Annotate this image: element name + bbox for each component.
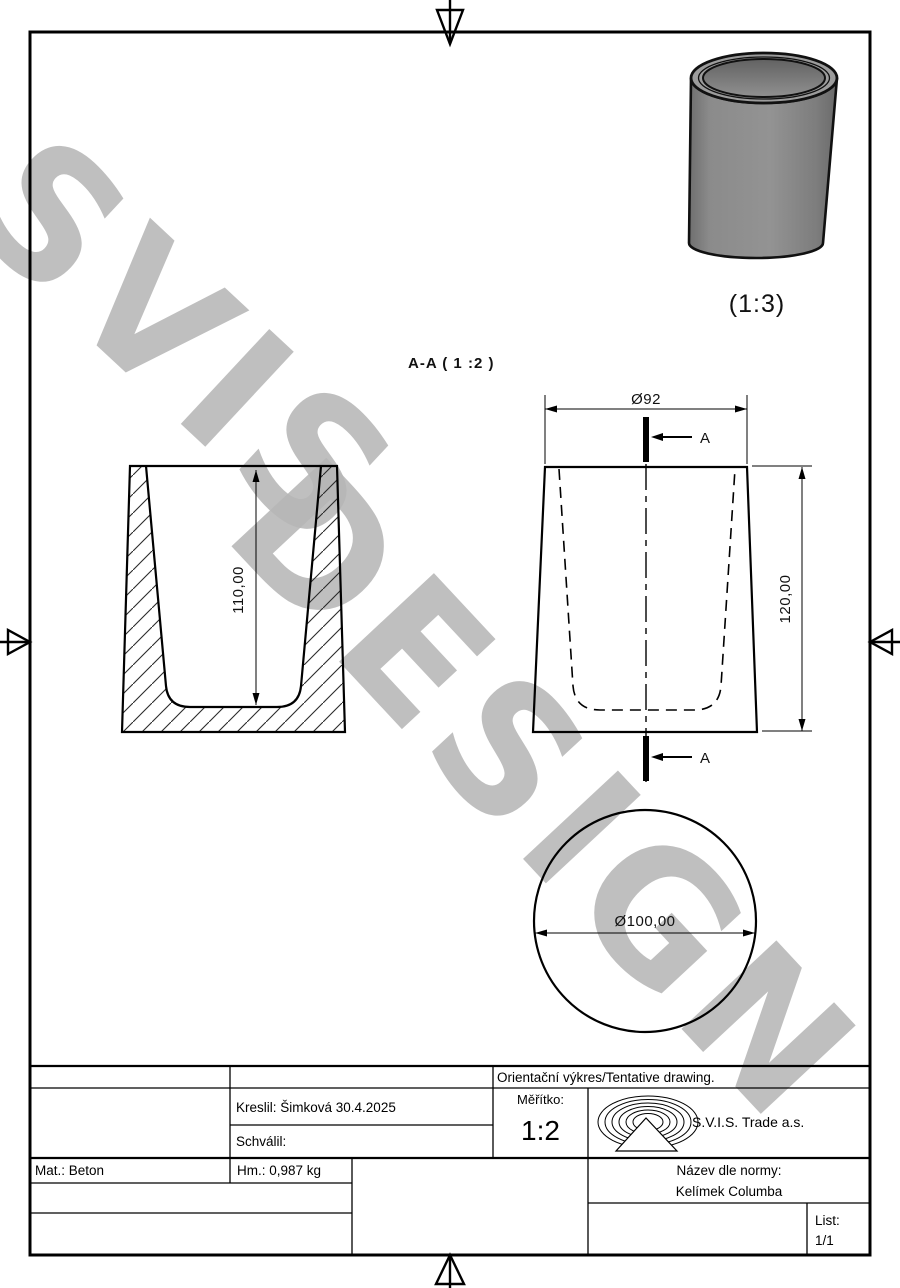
iso-scale-label: (1:3) bbox=[729, 290, 785, 318]
norm-name-label: Název dle normy: bbox=[588, 1160, 870, 1181]
dim-height: 120,00 bbox=[752, 466, 812, 731]
tentative-drawing-note: Orientační výkres/Tentative drawing. bbox=[497, 1066, 867, 1088]
section-arrow-top-label: A bbox=[700, 430, 711, 447]
material-field: Mat.: Beton bbox=[35, 1158, 225, 1183]
section-title: A-A ( 1 :2 ) bbox=[408, 355, 494, 372]
scale-label: Měřítko: bbox=[493, 1090, 588, 1108]
centering-mark-bottom bbox=[436, 1255, 464, 1288]
sheet-label: List: bbox=[815, 1210, 867, 1230]
approved-by-field: Schválil: bbox=[236, 1125, 491, 1158]
section-arrow-bottom-label: A bbox=[700, 750, 711, 767]
company-logo-icon bbox=[598, 1096, 698, 1151]
centering-mark-top bbox=[437, 0, 463, 44]
sheet-number: 1/1 bbox=[815, 1230, 867, 1250]
bottom-view: Ø100,00 bbox=[534, 810, 756, 1032]
centering-mark-right bbox=[870, 630, 900, 654]
iso-view: (1:3) bbox=[689, 53, 837, 318]
mass-field: Hm.: 0,987 kg bbox=[237, 1158, 349, 1183]
centering-mark-left bbox=[0, 630, 30, 654]
drawn-by-field: Kreslil: Šimková 30.4.2025 bbox=[236, 1089, 491, 1125]
section-arrow-top: A bbox=[646, 417, 711, 462]
norm-name-value: Kelímek Columba bbox=[588, 1181, 870, 1202]
company-name: S.V.I.S. Trade a.s. bbox=[692, 1111, 867, 1133]
front-view: A A Ø92 bbox=[533, 391, 812, 782]
dim-bottom-diameter: Ø100,00 bbox=[535, 913, 755, 937]
section-arrow-bottom: A bbox=[646, 736, 711, 781]
dim-cavity-depth: 110,00 bbox=[230, 470, 260, 705]
dim-bottom-diameter-label: Ø100,00 bbox=[614, 913, 675, 930]
drawing-sheet: SVIS DESIGN bbox=[0, 0, 900, 1288]
dim-top-diameter-label: Ø92 bbox=[631, 391, 661, 408]
dim-height-label: 120,00 bbox=[777, 575, 794, 624]
dim-cavity-depth-label: 110,00 bbox=[230, 566, 247, 614]
section-view: 110,00 bbox=[122, 466, 345, 732]
scale-value: 1:2 bbox=[493, 1108, 588, 1154]
